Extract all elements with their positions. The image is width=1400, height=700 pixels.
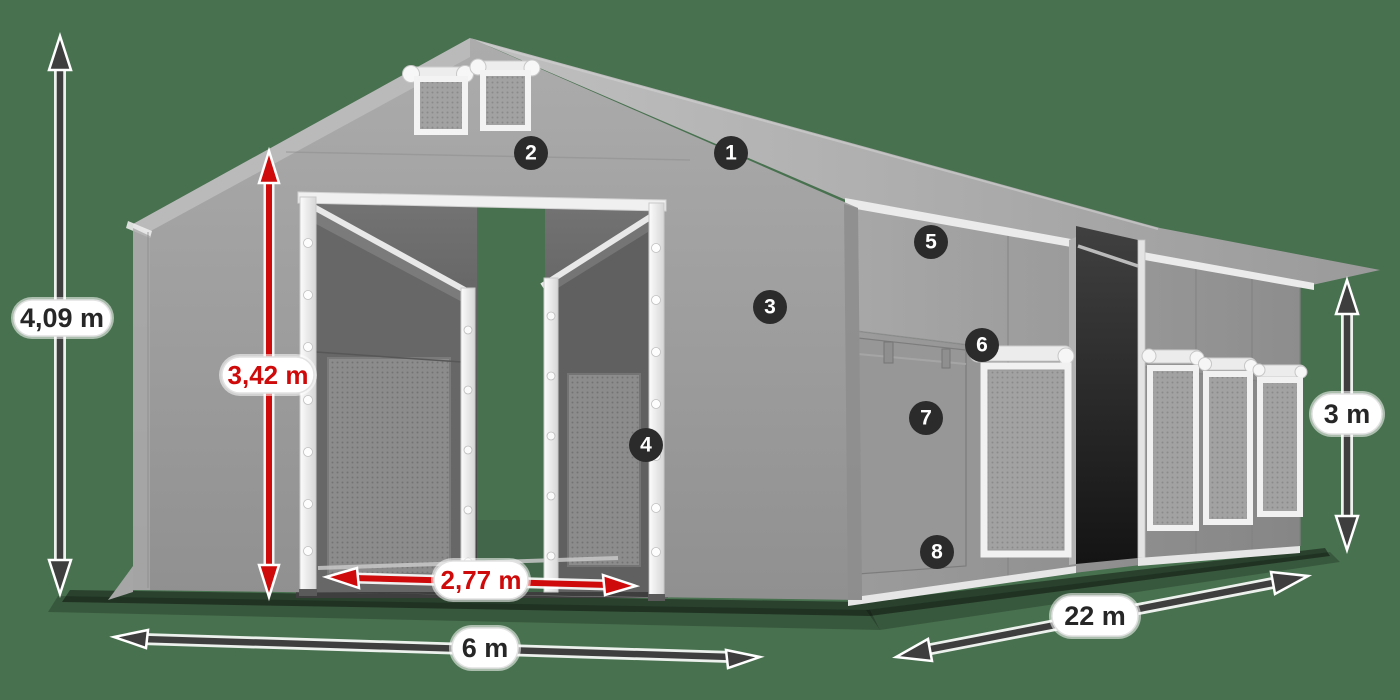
marker-6-number: 6 [976, 334, 988, 357]
marker-3-number: 3 [764, 296, 776, 319]
marker-2-badge[interactable]: 2 [514, 136, 548, 170]
marker-3-badge[interactable]: 3 [753, 290, 787, 324]
front-door-interior [296, 194, 668, 598]
marker-5-badge[interactable]: 5 [914, 225, 948, 259]
side-height-label: 3 m [1324, 399, 1371, 429]
interior-mesh-panel [328, 358, 450, 574]
mesh-window [1206, 374, 1250, 522]
vent-window [483, 73, 528, 128]
marker-4-number: 4 [640, 434, 652, 457]
interior-mesh-panel [568, 374, 640, 566]
marker-7-badge[interactable]: 7 [909, 401, 943, 435]
flap-strap [942, 349, 950, 368]
marker-2-number: 2 [525, 142, 537, 165]
marker-4-badge[interactable]: 4 [629, 428, 663, 462]
side-entrance-flap [858, 338, 966, 574]
total-height-label: 4,09 m [20, 303, 104, 333]
side-windows-far [1142, 349, 1307, 528]
mesh-window [1260, 380, 1300, 514]
marker-8-number: 8 [931, 541, 943, 564]
marker-1-number: 1 [725, 142, 737, 165]
door-height-label: 3,42 m [228, 360, 309, 390]
marker-1-badge[interactable]: 1 [714, 136, 748, 170]
door-width-label: 2,77 m [441, 565, 522, 595]
marker-6-badge[interactable]: 6 [965, 328, 999, 362]
sliding-door-opening [1069, 226, 1145, 565]
front-width-label: 6 m [462, 633, 509, 663]
marker-7-number: 7 [920, 407, 932, 430]
flap-strap [884, 342, 893, 363]
length-label: 22 m [1064, 601, 1126, 631]
marker-5-number: 5 [925, 231, 937, 254]
mesh-window [984, 366, 1068, 554]
tent-dimension-diagram: 1 2 3 4 5 6 7 8 [0, 0, 1400, 700]
mesh-window [1150, 368, 1196, 528]
side-window-near [970, 346, 1074, 554]
tent-diagram-canvas: 1 2 3 4 5 6 7 8 [0, 0, 1400, 700]
vent-window [417, 79, 465, 132]
door-edge-pole [1138, 240, 1145, 558]
marker-8-badge[interactable]: 8 [920, 535, 954, 569]
